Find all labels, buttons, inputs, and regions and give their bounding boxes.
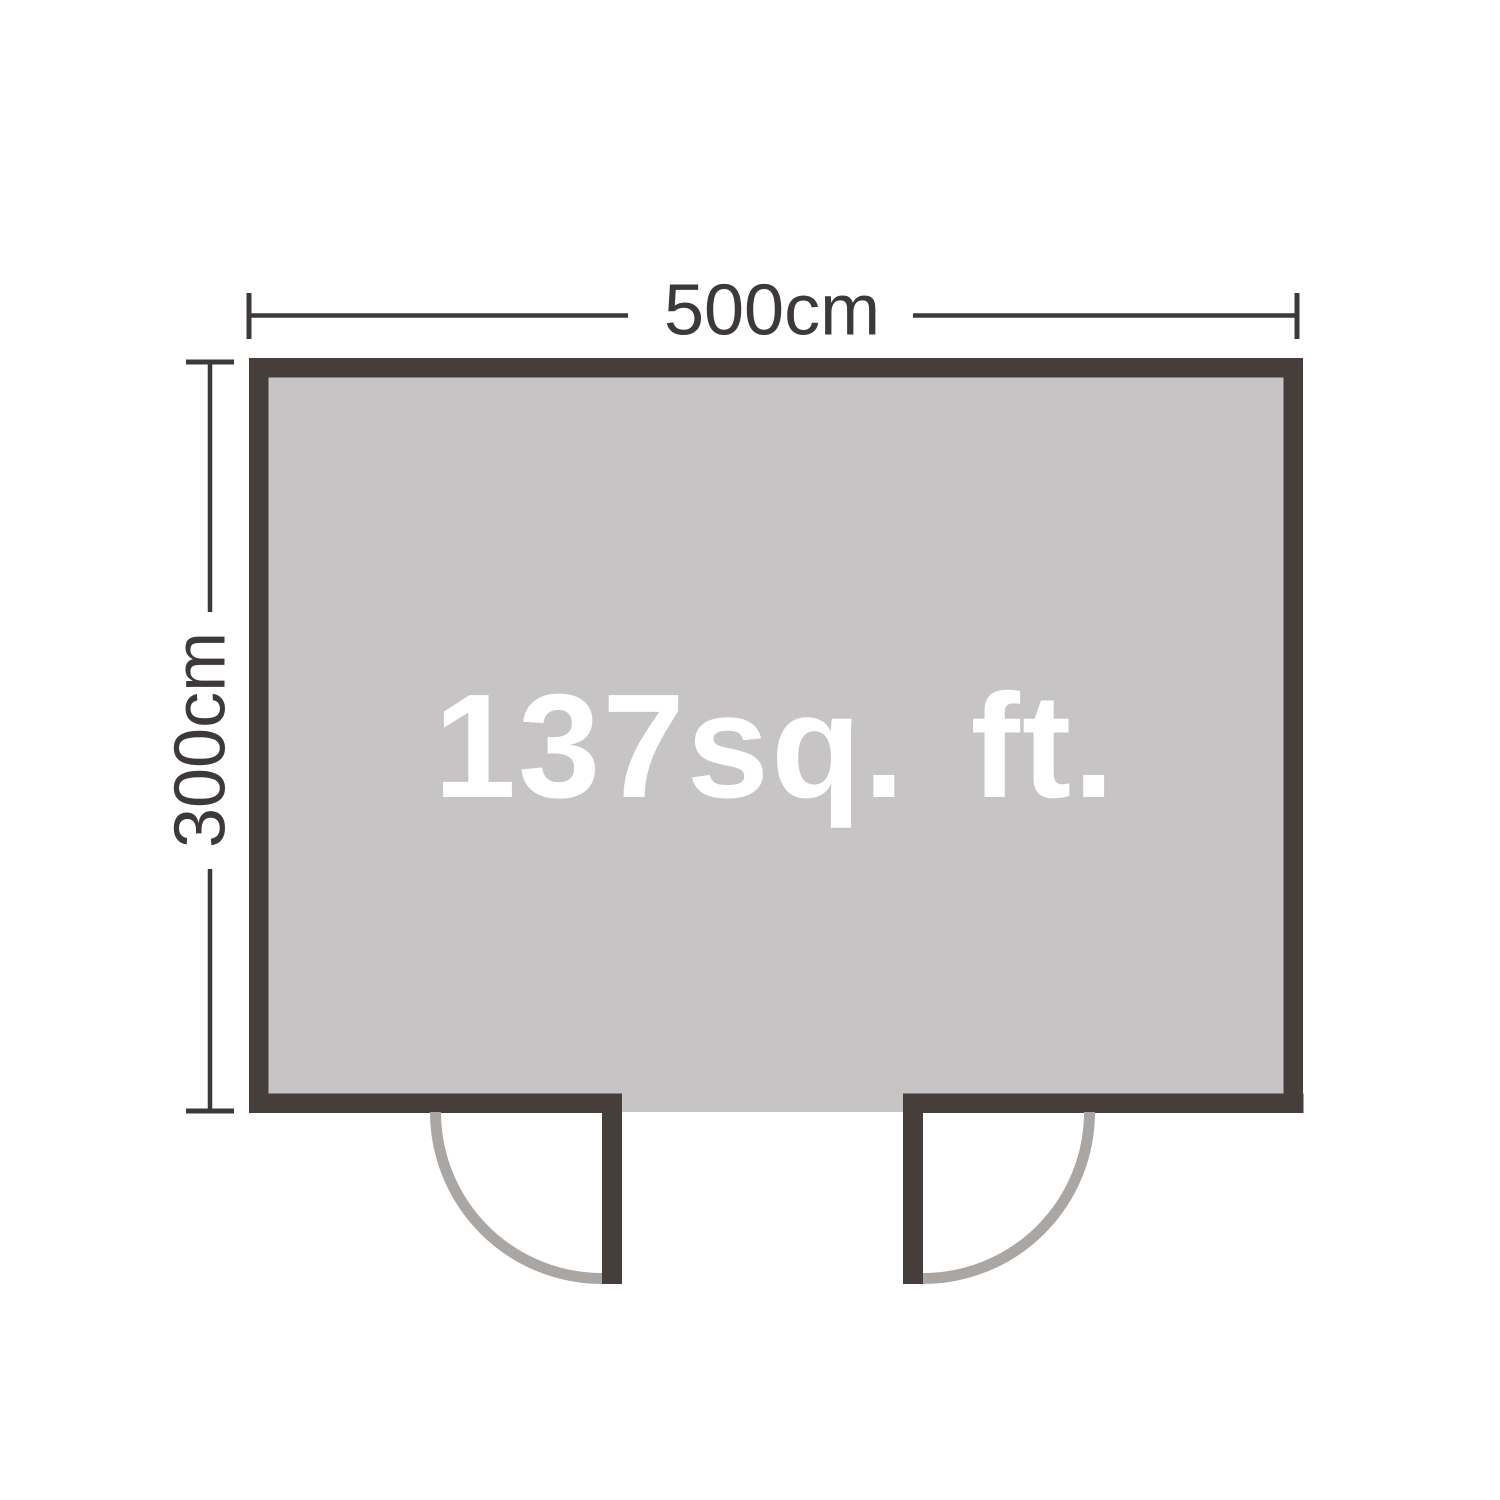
svg-text:137sq. ft.: 137sq. ft. [434, 664, 1117, 829]
svg-text:300cm: 300cm [161, 632, 241, 848]
svg-text:500cm: 500cm [664, 271, 880, 351]
